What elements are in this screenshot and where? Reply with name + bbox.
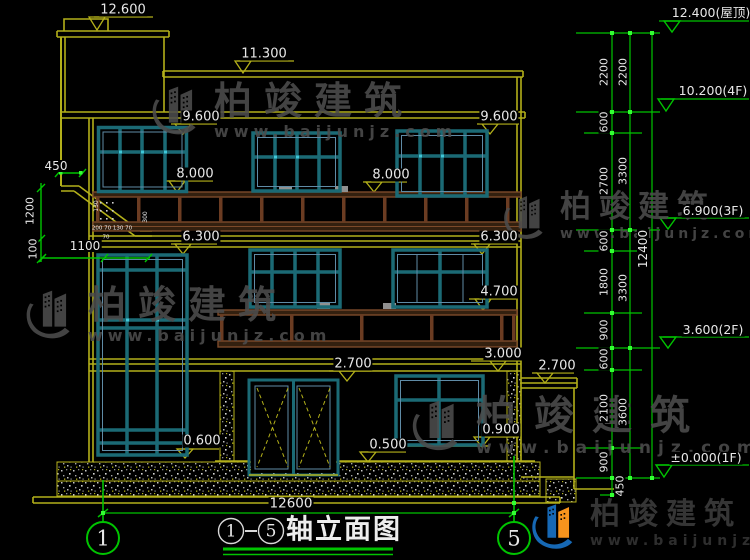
dim-label: 3300 bbox=[618, 273, 629, 303]
brand-logo-icon bbox=[22, 286, 80, 344]
level-marker-2f: 3.600(2F) bbox=[682, 324, 745, 337]
cad-elevation-screenshot: 柏竣建筑 www.baijunjz.com 柏竣建筑 www.baijunjz.… bbox=[0, 0, 750, 560]
watermark: 柏竣建筑 www.baijunjz.com bbox=[500, 192, 750, 244]
overall-dim-label: 12600 bbox=[269, 497, 314, 511]
dim-label-balcony-height: 1200 bbox=[25, 196, 36, 226]
brand-logo: 柏竣建筑 www.baijunjz.com bbox=[528, 500, 750, 554]
dim-label-offset: 450 bbox=[44, 160, 69, 172]
dim-label: 2100 bbox=[599, 393, 610, 423]
brand-logo-icon bbox=[528, 500, 582, 554]
elevation-marker-6300-left: 6.300 bbox=[181, 231, 220, 244]
elevation-marker-4700: 4.700 bbox=[479, 286, 518, 299]
micro-dim: 200 70 130 70 bbox=[92, 226, 132, 232]
elevation-marker-2700-door: 2.700 bbox=[333, 358, 372, 371]
grid-bubble-5: 5 bbox=[506, 529, 521, 550]
level-marker-3f: 6.900(3F) bbox=[682, 205, 745, 218]
dim-label: 600 bbox=[599, 230, 610, 253]
watermark-brand: 柏竣建筑 bbox=[214, 82, 457, 120]
dim-label: 2700 bbox=[599, 166, 610, 196]
elevation-marker-0600: 0.600 bbox=[182, 435, 221, 448]
elevation-marker-0500: 0.500 bbox=[368, 439, 407, 452]
elevation-marker-11300: 11.300 bbox=[240, 48, 288, 61]
dim-label: 900 bbox=[599, 319, 610, 342]
watermark-site: www.baijunjz.com bbox=[214, 124, 457, 140]
brand-logo-text: 柏竣建筑 bbox=[590, 500, 750, 530]
dim-label: 600 bbox=[599, 111, 610, 134]
micro-dim: 130 bbox=[94, 200, 100, 211]
dim-label: 900 bbox=[599, 451, 610, 474]
elevation-marker-2700-side: 2.700 bbox=[537, 360, 576, 373]
elevation-marker-8000-right: 8.000 bbox=[371, 169, 410, 182]
elevation-marker-0900: 0.900 bbox=[481, 424, 520, 437]
title-bubble-start: 1 bbox=[225, 524, 238, 541]
elevation-marker-6300-right: 6.300 bbox=[479, 231, 518, 244]
grid-bubble-1: 1 bbox=[95, 529, 110, 550]
elevation-marker-8000-left: 8.000 bbox=[175, 168, 214, 181]
title-bubble-end: 5 bbox=[265, 524, 278, 541]
watermark-site: www.baijunjz.com bbox=[560, 227, 750, 241]
micro-dim: 300 bbox=[143, 211, 149, 222]
dim-label-width: 1100 bbox=[69, 240, 102, 252]
watermark-site: www.baijunjz.com bbox=[88, 328, 331, 344]
level-marker-4f: 10.200(4F) bbox=[678, 85, 749, 98]
dim-label: 2200 bbox=[618, 57, 629, 87]
elevation-marker-12600: 12.600 bbox=[99, 4, 147, 17]
drawing-title: 轴立面图 bbox=[285, 517, 403, 544]
entrance-door bbox=[249, 380, 338, 475]
dim-label: 3300 bbox=[618, 156, 629, 186]
watermark: 柏竣建筑 www.baijunjz.com bbox=[408, 396, 750, 457]
brand-logo-icon bbox=[408, 396, 468, 456]
micro-dim: 70 bbox=[103, 235, 110, 241]
elevation-marker-9600-left: 9.600 bbox=[181, 111, 220, 124]
elevation-marker-9600-right: 9.600 bbox=[479, 111, 518, 124]
dim-label: 2200 bbox=[599, 57, 610, 87]
level-marker-roof: 12.400(屋顶) bbox=[671, 7, 750, 20]
elevation-marker-3000: 3.000 bbox=[483, 348, 522, 361]
dim-label-total: 12400 bbox=[637, 229, 649, 269]
brand-logo-site: www.baijunjz.com bbox=[590, 534, 750, 548]
watermark-brand: 柏竣建筑 bbox=[88, 286, 331, 324]
dim-label: 600 bbox=[599, 348, 610, 371]
dim-label: 3600 bbox=[618, 397, 629, 427]
dim-label: 1800 bbox=[599, 267, 610, 297]
watermark: 柏竣建筑 www.baijunjz.com bbox=[22, 286, 331, 344]
dim-label-step: 100 bbox=[28, 238, 39, 261]
level-marker-1f: ±0.000(1F) bbox=[669, 452, 742, 465]
dim-label-base: 450 bbox=[615, 475, 626, 498]
